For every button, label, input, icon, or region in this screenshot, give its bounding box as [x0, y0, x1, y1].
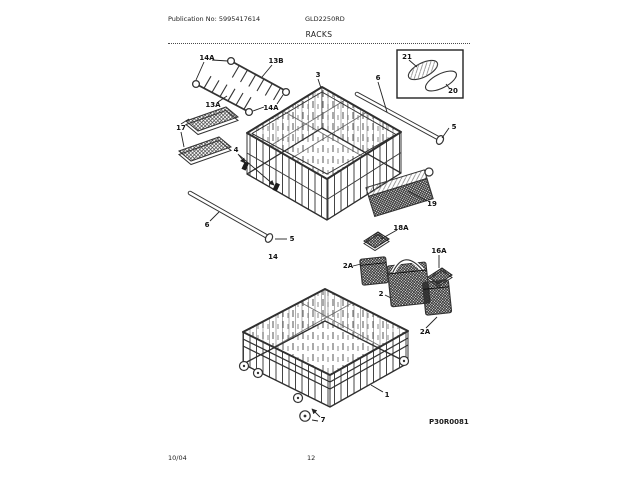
- parts-catalog-page: Publication No: 5995417614 GLD2250RD RAC…: [0, 0, 640, 480]
- part-label-7: 7: [321, 416, 326, 424]
- basket-hang-ring: [425, 168, 433, 176]
- part-label-17: 17: [176, 124, 186, 132]
- part-label-6: 6: [205, 221, 210, 229]
- part-label-14: 14: [268, 253, 278, 261]
- tine-cap-14a: [228, 58, 235, 65]
- part-label-20: 20: [448, 87, 458, 95]
- tine-cap-14a: [193, 81, 200, 88]
- part-label-5: 5: [290, 235, 295, 243]
- cup-shelves: [179, 107, 238, 165]
- small-items-basket-2a-right: [422, 280, 451, 316]
- part-label-5: 5: [452, 123, 457, 131]
- part-label-21: 21: [402, 53, 412, 61]
- tine-cap-14a: [283, 89, 290, 96]
- figure-id: P30R0081: [429, 418, 469, 426]
- part-label-2: 2: [379, 290, 384, 298]
- part-label-14a: 14A: [199, 54, 214, 62]
- part-label-13a: 13A: [205, 101, 220, 109]
- part-label-4: 4: [234, 146, 239, 154]
- tine-cap-14a: [246, 109, 253, 116]
- part-label-19: 19: [427, 200, 437, 208]
- part-label-3: 3: [316, 71, 321, 79]
- small-items-basket-2a-left: [360, 257, 389, 286]
- part-label-13b: 13B: [268, 57, 283, 65]
- footer-date: 10/04: [168, 454, 187, 462]
- part-label-2a: 2A: [420, 328, 430, 336]
- wheel-detail-7: [300, 409, 320, 421]
- part-label-18a: 18A: [393, 224, 408, 232]
- part-label-2a: 2A: [343, 262, 353, 270]
- part-label-16a: 16A: [431, 247, 446, 255]
- part-label-1: 1: [385, 391, 390, 399]
- part-label-6: 6: [376, 74, 381, 82]
- part-label-14a: 14A: [263, 104, 278, 112]
- lower-slide-rail: [190, 193, 274, 244]
- footer-page-number: 12: [307, 454, 315, 462]
- lower-rack-drawing: [240, 289, 409, 407]
